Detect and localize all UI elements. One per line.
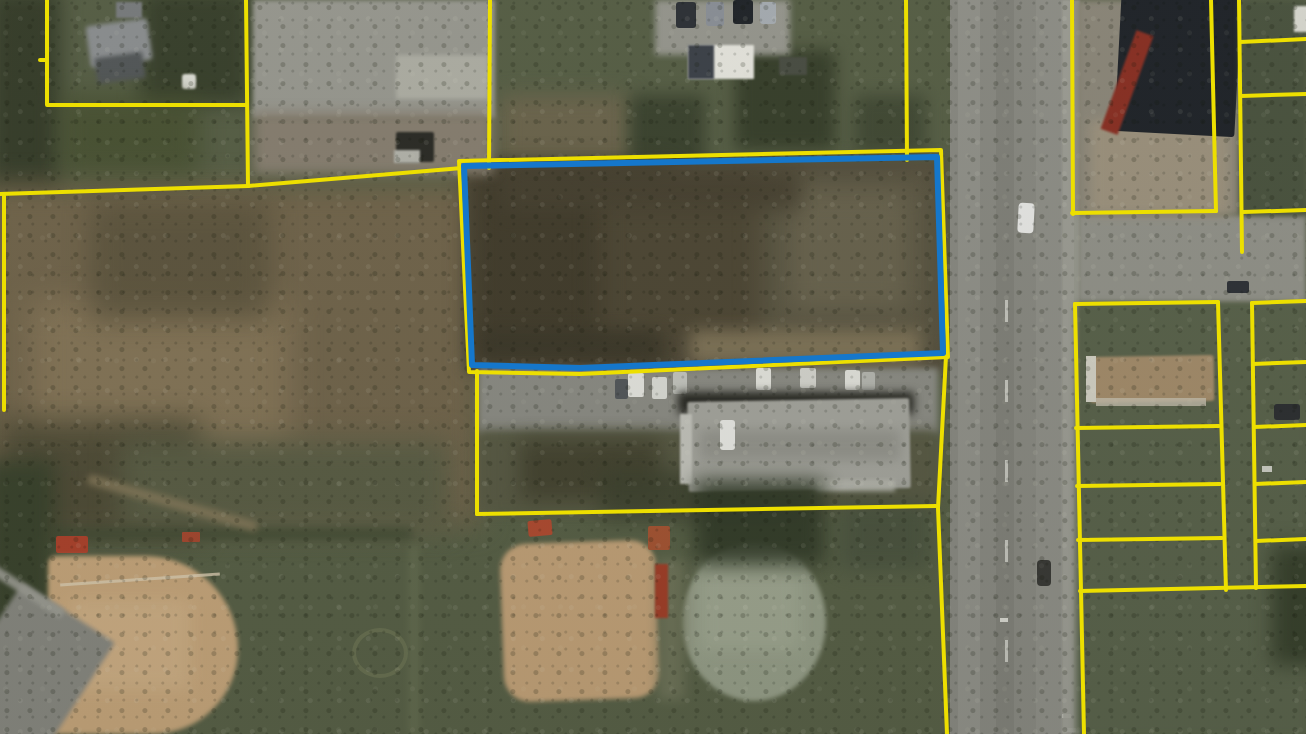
parcel-line	[1243, 210, 1306, 212]
parcel-line	[906, 0, 907, 160]
parcel-line	[1080, 586, 1306, 591]
parcel-line	[1072, 211, 1216, 213]
parcel-line	[938, 356, 947, 734]
selected-parcel-yellow-boundary	[459, 150, 948, 374]
parcel-line	[1075, 304, 1084, 734]
parcel-line	[1211, 0, 1216, 211]
parcel-line	[489, 0, 490, 168]
parcel-line	[1077, 484, 1220, 486]
parcel-line	[1252, 301, 1306, 303]
parcel-line	[1239, 0, 1242, 252]
parcel-line	[1256, 539, 1306, 541]
parcel-line	[1241, 94, 1306, 96]
parcel-line	[1072, 0, 1073, 214]
parcel-line	[477, 506, 936, 514]
aerial-map-viewport[interactable]	[0, 0, 1306, 734]
selected-parcel[interactable]	[464, 157, 943, 368]
parcel-line	[1255, 482, 1306, 484]
parcel-line	[1075, 302, 1218, 304]
parcel-line	[1240, 39, 1306, 42]
parcel-line	[0, 186, 248, 194]
parcel-line	[1076, 426, 1219, 428]
parcel-line	[1218, 302, 1226, 590]
parcel-boundary-layer	[0, 0, 1306, 734]
parcel-line	[47, 0, 246, 105]
parcel-line	[1078, 538, 1222, 540]
parcel-line	[246, 0, 248, 186]
parcel-line	[1254, 425, 1306, 427]
parcel-line	[1252, 303, 1256, 588]
parcel-line	[1253, 362, 1306, 364]
parcel-line	[248, 168, 462, 186]
